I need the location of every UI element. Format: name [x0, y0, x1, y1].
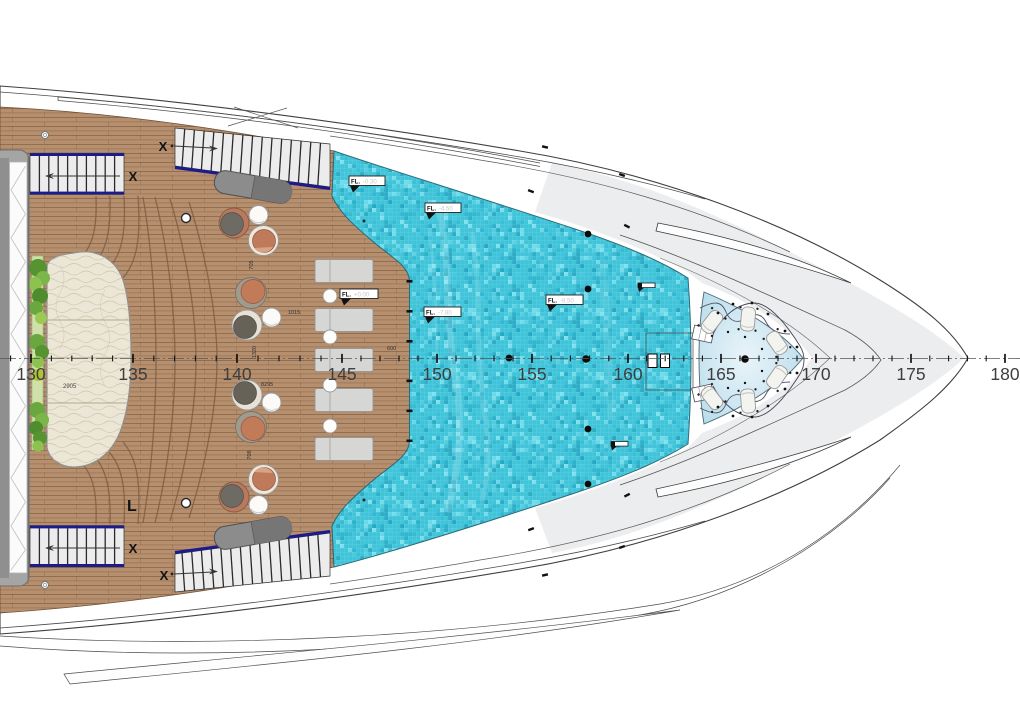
svg-text:FL.: FL.: [426, 311, 435, 317]
svg-text:L: L: [127, 498, 137, 515]
svg-text:160: 160: [613, 364, 642, 384]
svg-text:FL.: FL.: [427, 207, 436, 213]
svg-text:1320: 1320: [252, 346, 258, 358]
svg-text:600: 600: [387, 346, 396, 352]
svg-text:X: X: [159, 139, 168, 154]
svg-text:1015: 1015: [288, 310, 300, 316]
svg-text:X: X: [129, 541, 138, 556]
svg-text:+0.00: +0.00: [354, 293, 370, 299]
svg-text:X: X: [160, 568, 169, 583]
svg-text:175: 175: [896, 364, 925, 384]
svg-text:-0.30: -0.30: [363, 180, 377, 186]
svg-text:705: 705: [249, 260, 255, 269]
svg-text:145: 145: [327, 364, 356, 384]
svg-text:708: 708: [247, 450, 253, 459]
svg-text:2905: 2905: [63, 384, 77, 390]
svg-text:155: 155: [517, 364, 546, 384]
svg-text:135: 135: [118, 364, 147, 384]
svg-text:X: X: [129, 169, 138, 184]
svg-text:180: 180: [990, 364, 1019, 384]
svg-text:165: 165: [706, 364, 735, 384]
svg-text:FL.: FL.: [548, 299, 557, 305]
svg-text:-7.80: -7.80: [438, 311, 452, 317]
svg-text:130: 130: [16, 364, 45, 384]
svg-text:FL.: FL.: [351, 180, 360, 186]
svg-text:FL.: FL.: [342, 293, 351, 299]
svg-text:170: 170: [801, 364, 830, 384]
svg-text:-4.50: -4.50: [439, 207, 453, 213]
svg-text:-8.50: -8.50: [560, 299, 574, 305]
svg-text:150: 150: [422, 364, 451, 384]
svg-text:140: 140: [222, 364, 251, 384]
svg-text:8295: 8295: [261, 382, 273, 388]
